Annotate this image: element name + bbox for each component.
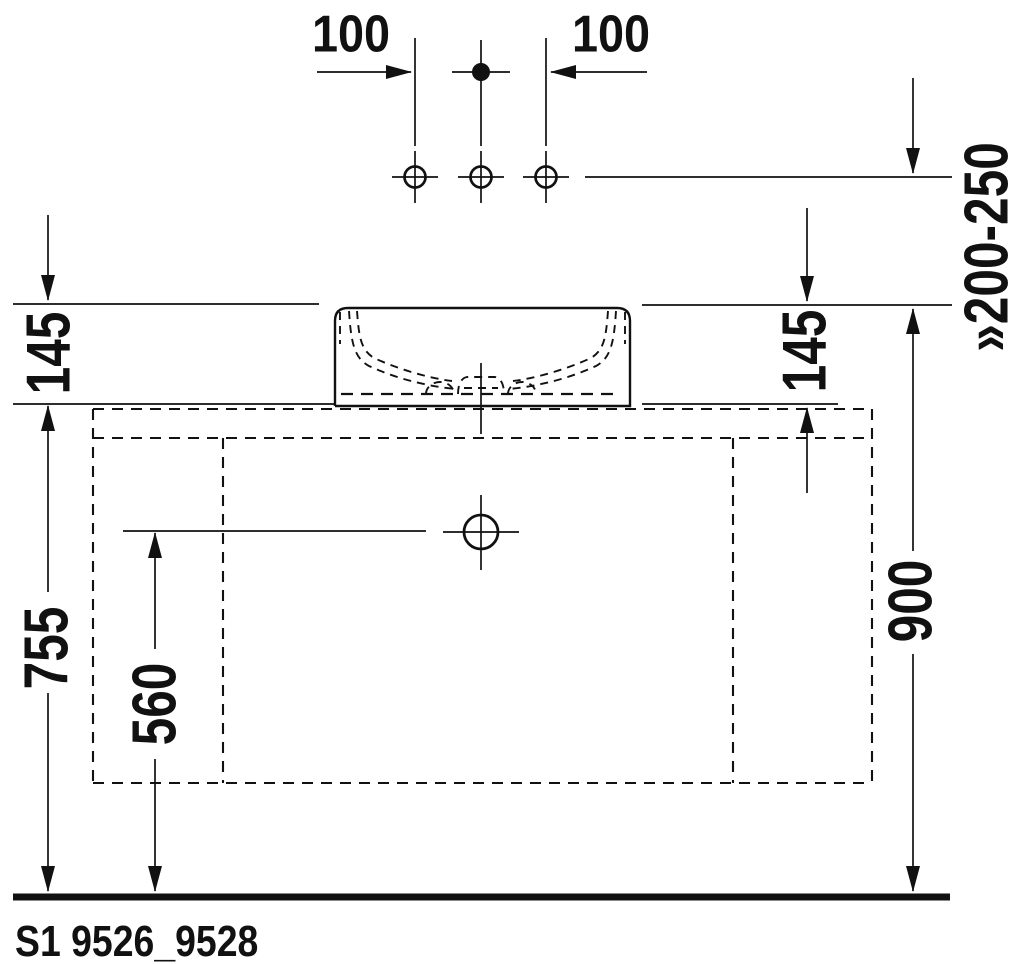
drain-boss-arc-right	[508, 382, 536, 394]
faucet-hole-right	[523, 151, 569, 203]
basin-installation-diagram: 100 100 145 145 »200-250 755 560 900 S1 …	[0, 0, 1024, 964]
dim-label-145-left: 145	[13, 312, 83, 395]
dim-label-200-250: »200-250	[951, 142, 1021, 352]
basin-bowl-contour-right-outer	[509, 311, 616, 389]
dim-label-100-left: 100	[312, 5, 390, 63]
basin-bowl-contour-left-inner	[357, 311, 452, 381]
dim-label-755: 755	[11, 607, 81, 690]
dim-label-900: 900	[875, 560, 945, 643]
dim-label-145-right: 145	[769, 310, 839, 393]
faucet-hole-center	[458, 151, 504, 203]
dim-label-560: 560	[119, 663, 189, 746]
drawing-code: S1 9526_9528	[15, 916, 258, 964]
technical-drawing-canvas: 100 100 145 145 »200-250 755 560 900 S1 …	[0, 0, 1024, 964]
dim-label-100-right: 100	[572, 5, 650, 63]
basin-bowl-contour-left-outer	[349, 311, 456, 389]
basin-bowl-contour-right-inner	[513, 311, 608, 381]
drain-reference	[123, 495, 519, 570]
vanity-projection	[93, 409, 872, 783]
basin-front-view	[335, 308, 630, 434]
basin-outline	[335, 308, 630, 406]
faucet-hole-left	[392, 151, 438, 203]
